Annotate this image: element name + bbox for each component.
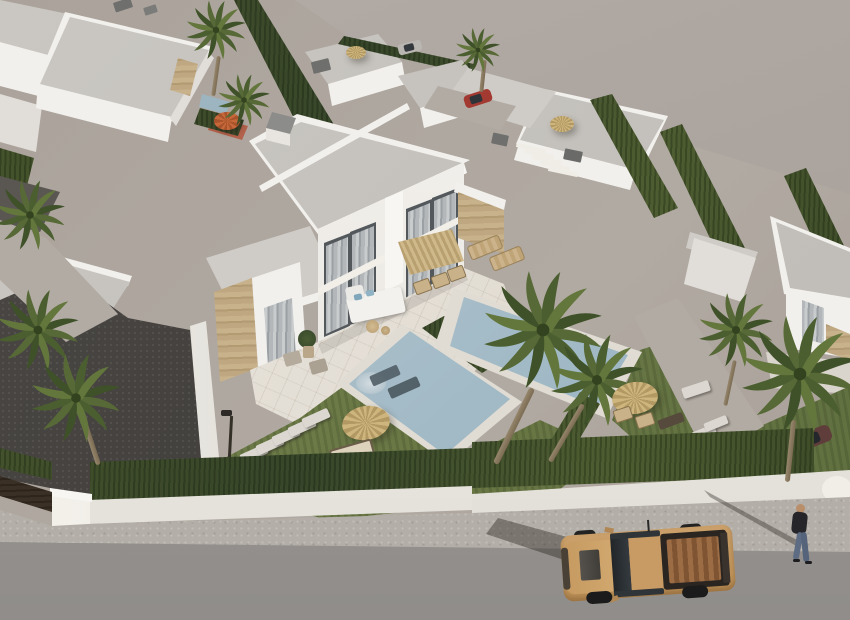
pickup-truck (560, 524, 736, 602)
bg-parasol-small (346, 46, 366, 59)
plant-pot (303, 346, 314, 358)
truck-bed-floor (666, 536, 721, 584)
truck-roof (628, 536, 664, 590)
pedestrian (788, 504, 814, 564)
palm-tree (737, 311, 850, 437)
palm-tree (454, 26, 502, 74)
truck-wheel (586, 591, 613, 605)
bg-parasol (550, 116, 574, 132)
pedestrian-leg (800, 532, 809, 562)
truck-wheel (682, 585, 709, 599)
palm-tree (28, 350, 124, 446)
pedestrian-shoe (793, 559, 800, 562)
pedestrian-shoe (805, 561, 812, 564)
coffee-table (366, 320, 379, 333)
truck-hood-scoop (579, 549, 601, 580)
palm-tree (0, 177, 68, 253)
palm-tree (216, 72, 272, 128)
garden-lamp-head (221, 410, 232, 416)
render-scene (0, 0, 850, 620)
coffee-table (381, 326, 390, 335)
palm-tree (184, 0, 248, 62)
